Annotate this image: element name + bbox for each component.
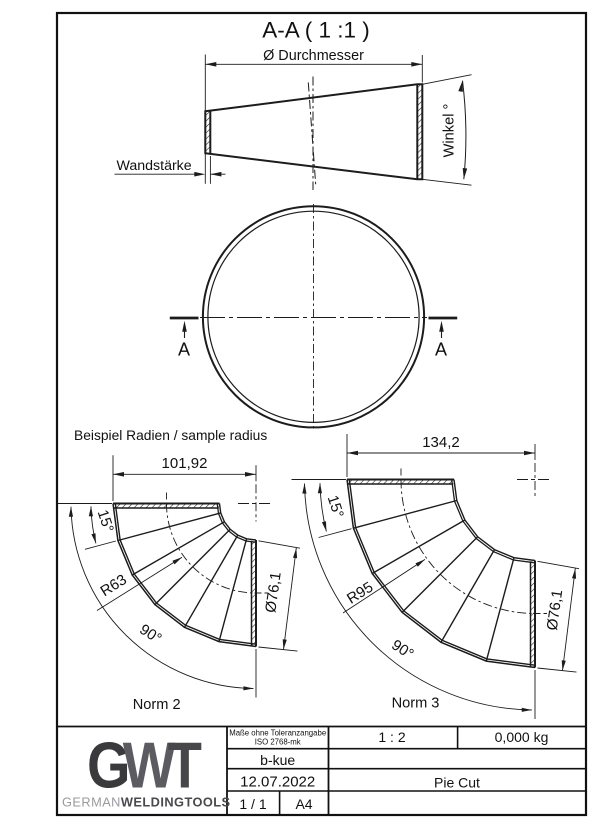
svg-text:Wandstärke: Wandstärke: [117, 158, 192, 174]
svg-text:b-kue: b-kue: [260, 752, 295, 768]
svg-text:Pie Cut: Pie Cut: [434, 775, 480, 791]
svg-text:1 : 2: 1 : 2: [378, 729, 405, 745]
svg-text:Beispiel Radien / sample radiu: Beispiel Radien / sample radius: [74, 428, 267, 443]
svg-text:0,000 kg: 0,000 kg: [495, 729, 549, 745]
svg-text:134,2: 134,2: [422, 434, 460, 451]
svg-text:A: A: [178, 340, 190, 360]
svg-text:GWT: GWT: [87, 729, 202, 802]
svg-text:Norm 2: Norm 2: [133, 697, 181, 713]
svg-text:101,92: 101,92: [162, 455, 208, 472]
svg-text:12.07.2022: 12.07.2022: [240, 773, 315, 790]
svg-text:ISO 2768-mk: ISO 2768-mk: [255, 738, 301, 747]
svg-text:Ø Durchmesser: Ø Durchmesser: [263, 48, 364, 64]
svg-text:A4: A4: [295, 796, 312, 812]
svg-text:A-A ( 1 :1 ): A-A ( 1 :1 ): [262, 18, 370, 43]
svg-text:1 / 1: 1 / 1: [239, 796, 266, 812]
svg-text:A: A: [435, 340, 447, 360]
svg-text:GERMANWELDINGTOOLS: GERMANWELDINGTOOLS: [62, 795, 231, 810]
svg-text:Winkel °: Winkel °: [442, 104, 458, 158]
svg-text:Norm 3: Norm 3: [392, 696, 440, 712]
svg-text:Maße ohne Toleranzangabe: Maße ohne Toleranzangabe: [229, 729, 326, 738]
